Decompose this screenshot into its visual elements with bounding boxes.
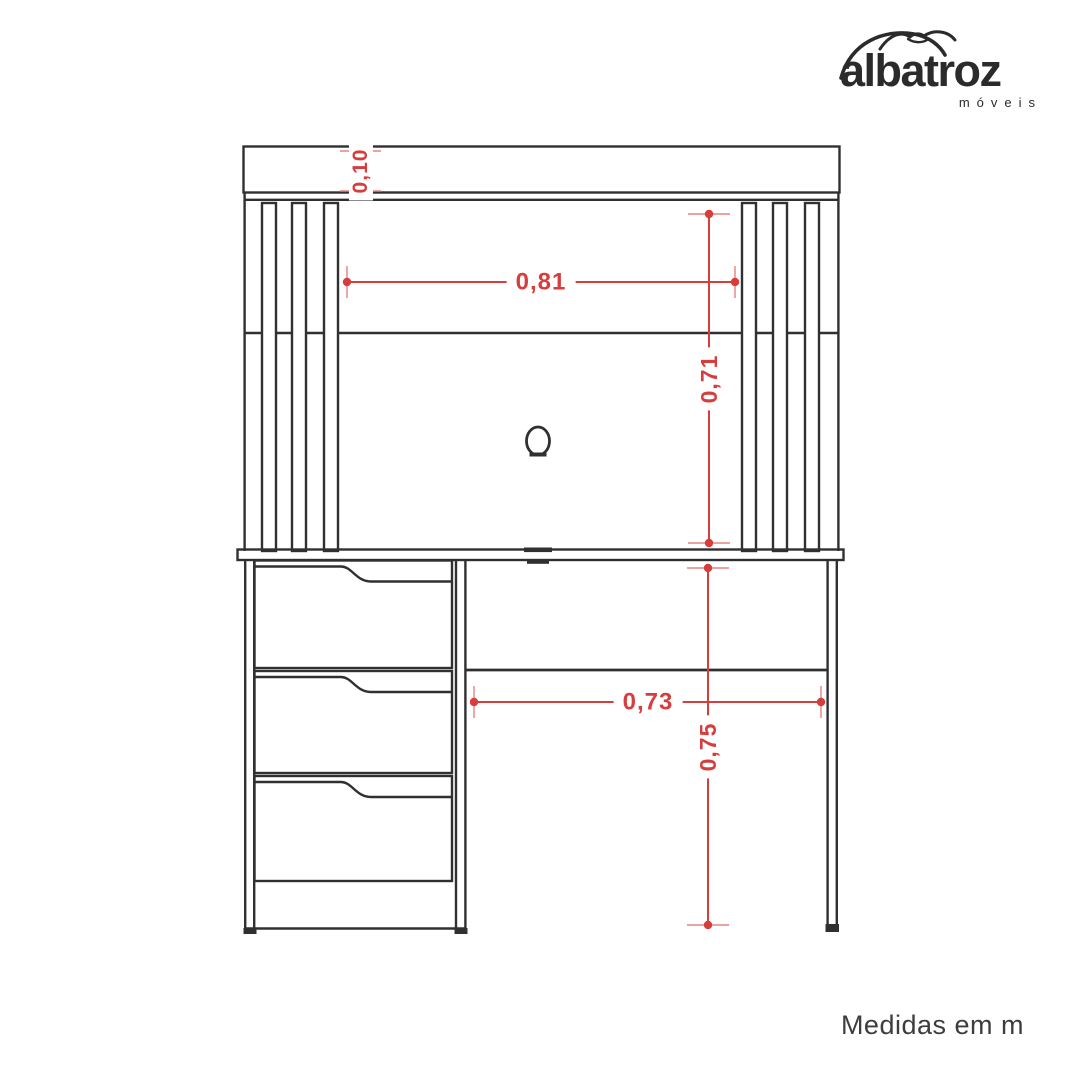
dim-label-hutch-height: 0,71 bbox=[696, 348, 722, 411]
brand-name: albatroz bbox=[840, 46, 1001, 96]
product-dimension-sheet: 0,10 0,81 0,71 0,73 0,75 albatroz móveis… bbox=[0, 0, 1080, 1080]
brand-logo: albatroz móveis bbox=[834, 20, 1044, 116]
dim-label-inner-width: 0,81 bbox=[507, 268, 576, 295]
drawer-1 bbox=[255, 561, 453, 669]
dim-label-desk-inner-width: 0,73 bbox=[614, 688, 683, 715]
brand-subtitle: móveis bbox=[959, 95, 1042, 110]
measurement-unit-note: Medidas em m bbox=[841, 1010, 1024, 1041]
cable-hole bbox=[527, 427, 550, 455]
drawer-stack bbox=[255, 561, 453, 882]
slat bbox=[324, 203, 338, 551]
slat bbox=[805, 203, 819, 551]
slat bbox=[292, 203, 306, 551]
furniture-diagram bbox=[0, 0, 1080, 1080]
hutch-header-board bbox=[244, 147, 840, 193]
drawer-2 bbox=[255, 671, 453, 773]
slat bbox=[742, 203, 756, 551]
slat bbox=[262, 203, 276, 551]
drawer-2-handle bbox=[255, 677, 453, 692]
drawer-3 bbox=[255, 776, 453, 881]
drawer-3-handle bbox=[255, 782, 453, 797]
dim-label-header-height: 0,10 bbox=[349, 142, 373, 201]
dim-label-desk-height: 0,75 bbox=[695, 716, 721, 779]
drawer-1-handle bbox=[255, 567, 453, 582]
slat bbox=[773, 203, 787, 551]
